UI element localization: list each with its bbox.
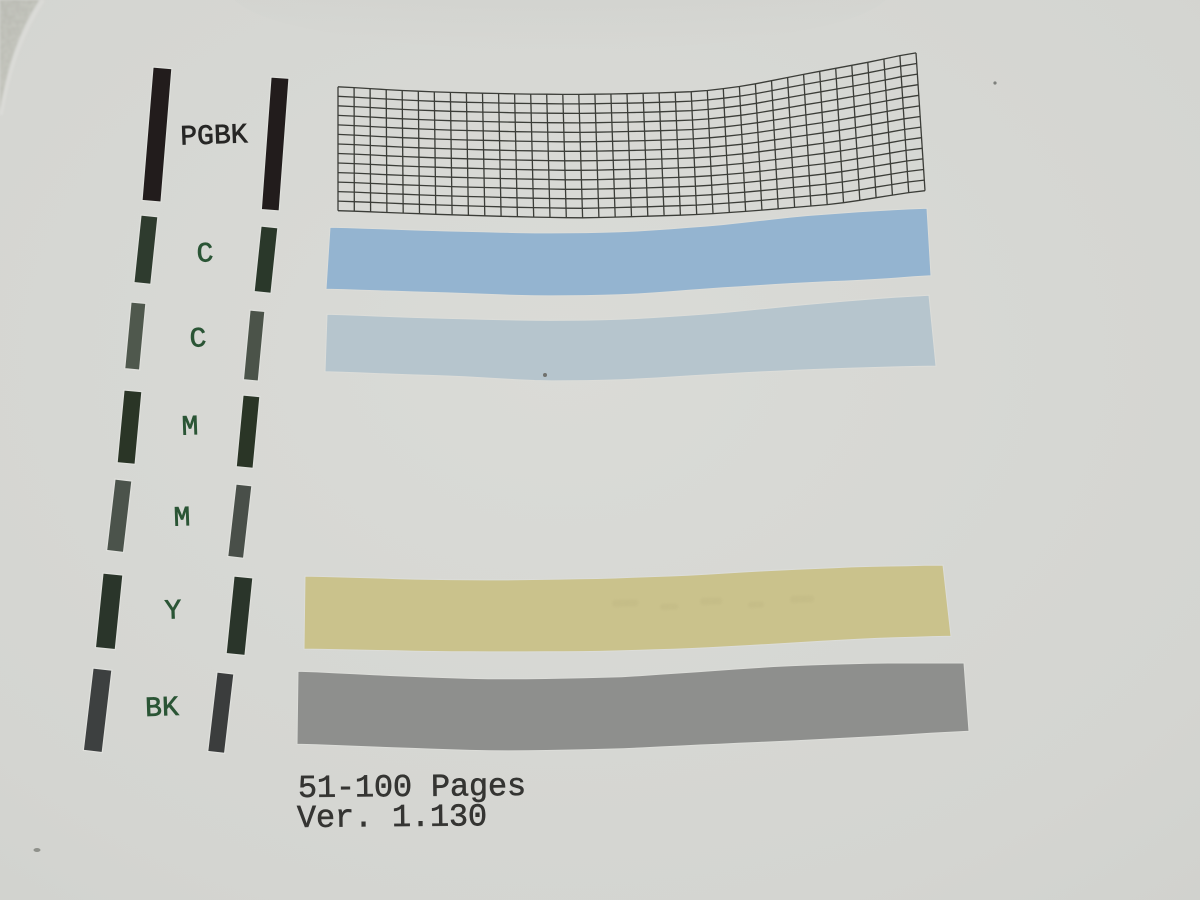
svg-text:C: C [189,324,207,356]
svg-text:BK: BK [145,693,180,725]
svg-text:M: M [181,412,199,444]
svg-text:Ver. 1.130: Ver. 1.130 [297,798,487,837]
svg-text:PGBK: PGBK [180,120,248,153]
svg-text:C: C [196,239,214,271]
svg-text:Y: Y [164,596,182,628]
svg-text:M: M [173,503,191,535]
